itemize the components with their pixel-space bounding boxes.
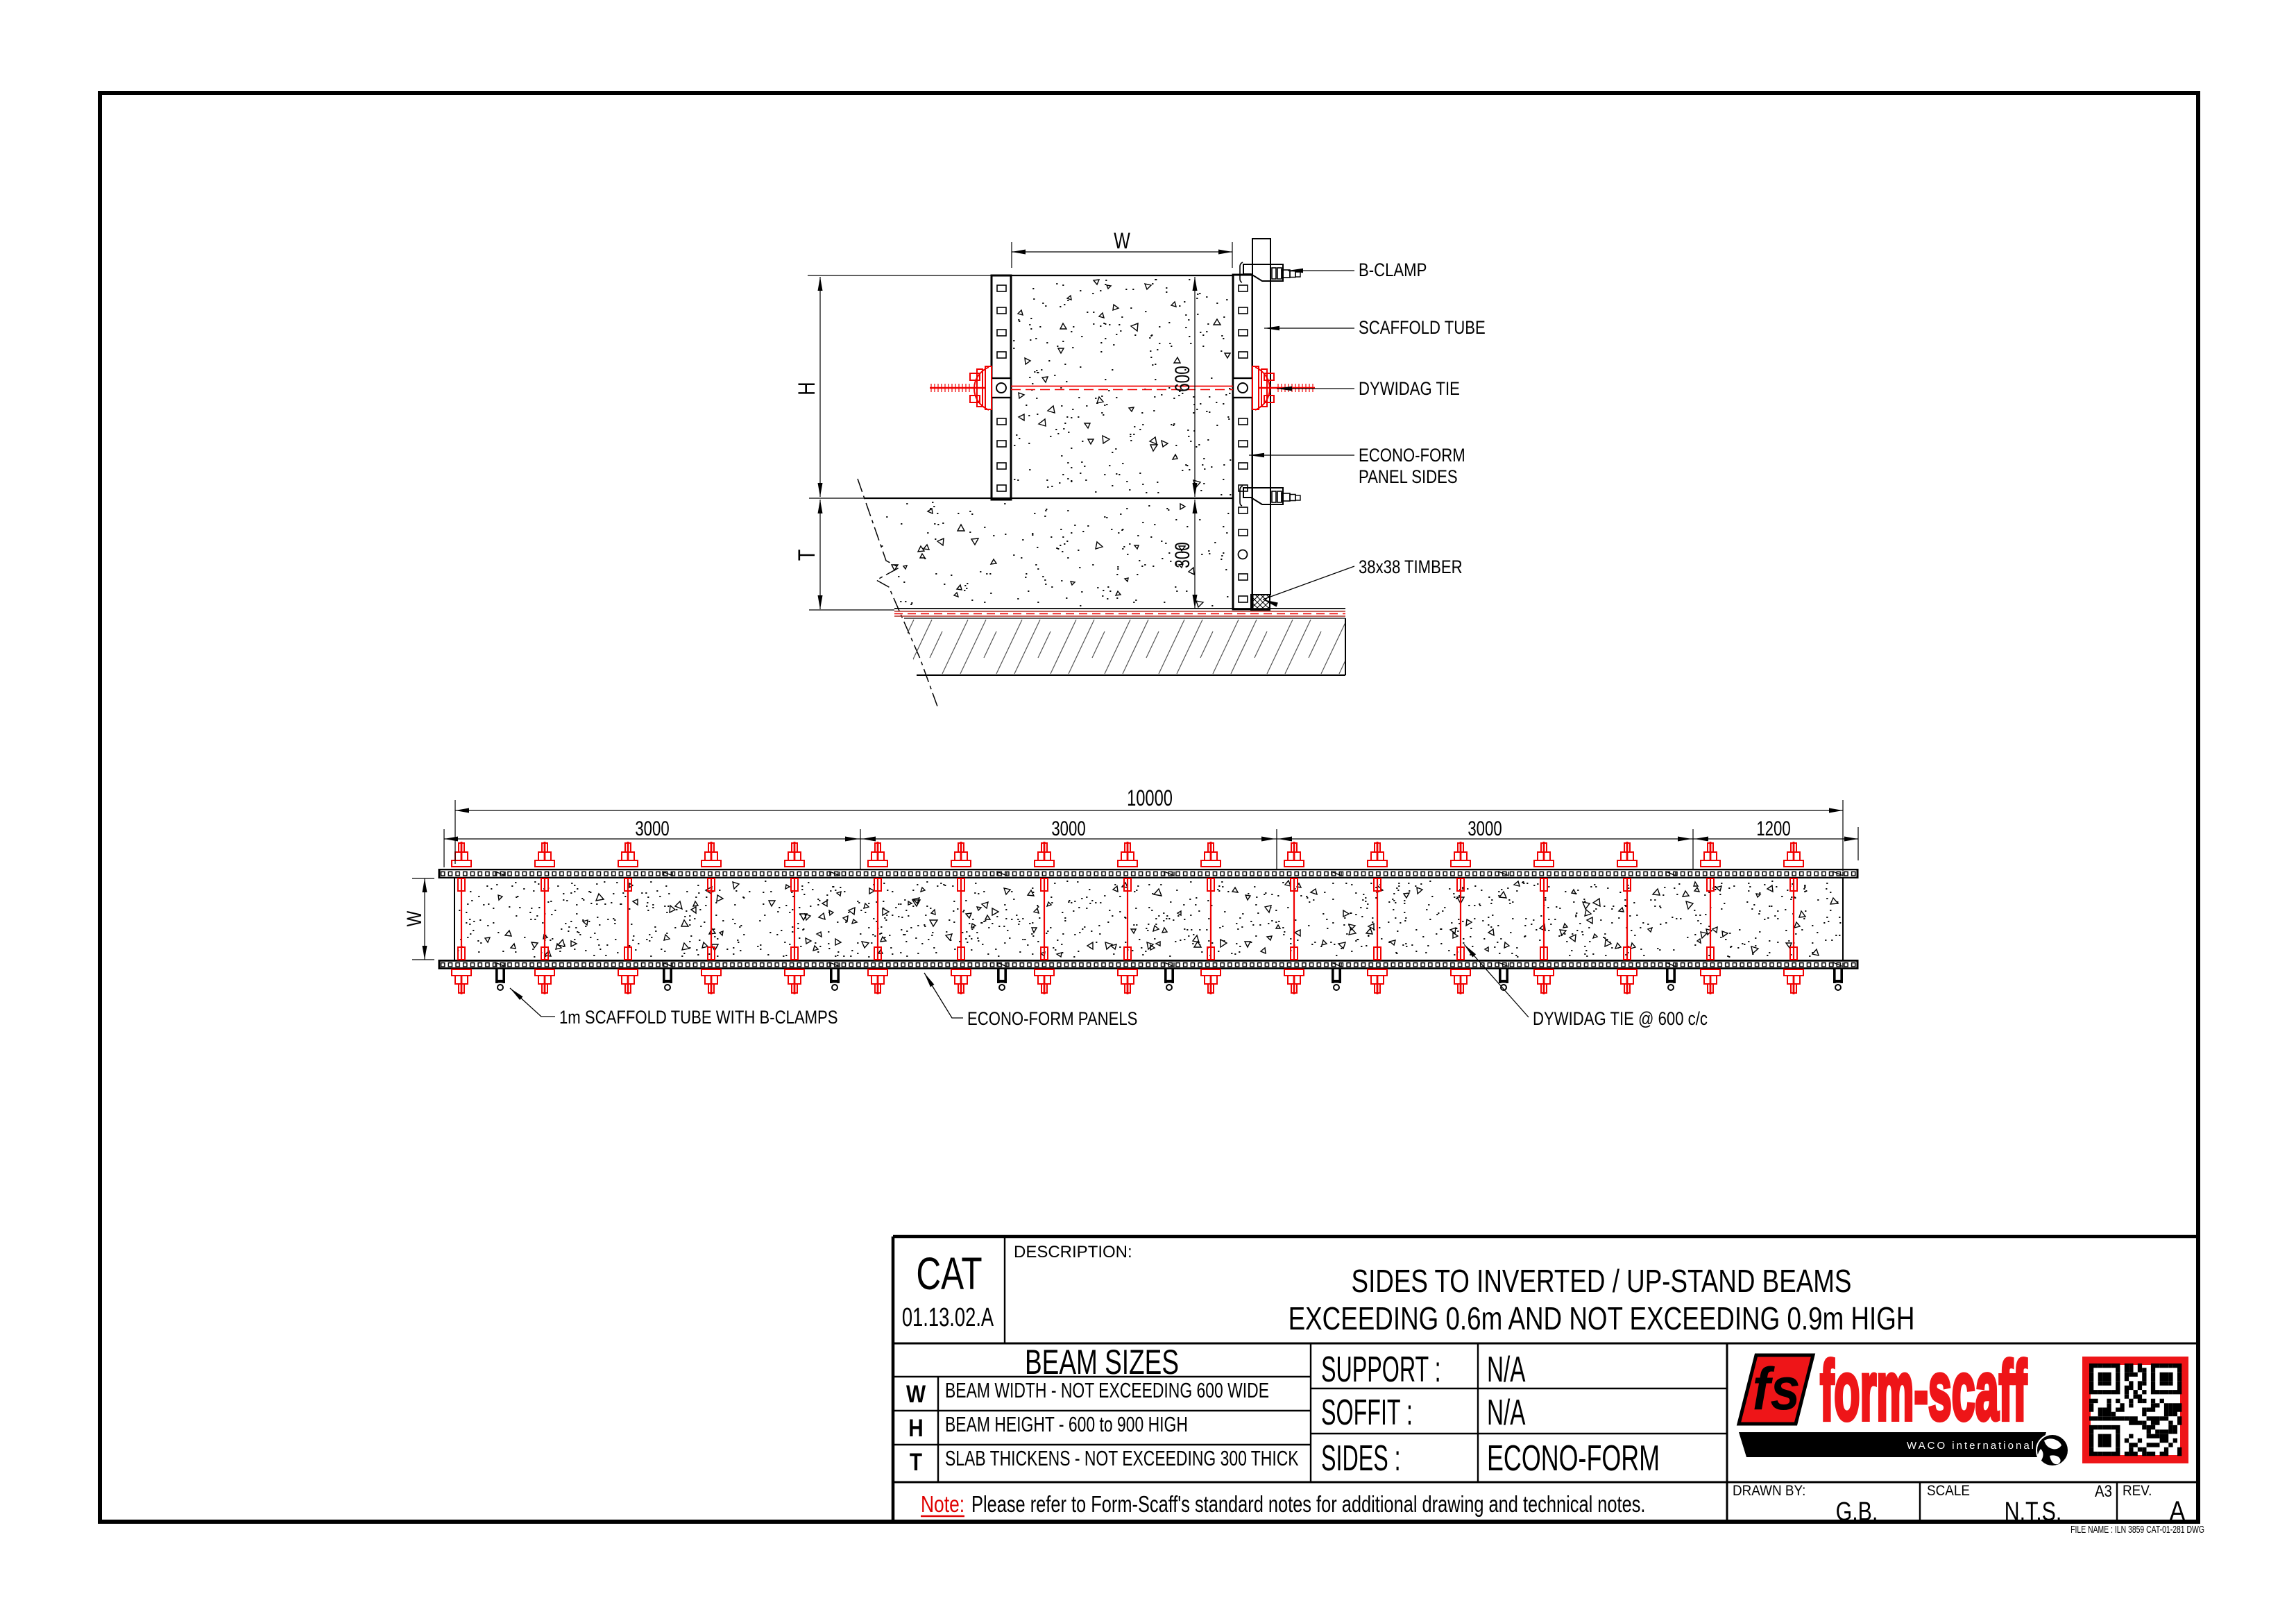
- svg-text:DESCRIPTION:: DESCRIPTION:: [1014, 1243, 1132, 1261]
- svg-text:ECONO-FORM PANELS: ECONO-FORM PANELS: [967, 1009, 1137, 1030]
- svg-text:N/A: N/A: [1487, 1393, 1526, 1433]
- svg-text:BEAM SIZES: BEAM SIZES: [1025, 1343, 1179, 1382]
- svg-text:SIDES TO INVERTED / UP-STAND B: SIDES TO INVERTED / UP-STAND BEAMS: [1352, 1263, 1852, 1299]
- svg-text:01.13.02.A: 01.13.02.A: [902, 1303, 994, 1332]
- svg-text:A: A: [2170, 1495, 2186, 1526]
- svg-text:N/A: N/A: [1487, 1350, 1526, 1390]
- svg-text:fs: fs: [1753, 1356, 1801, 1422]
- svg-text:600: 600: [1171, 366, 1194, 392]
- svg-text:B-CLAMP: B-CLAMP: [1359, 260, 1427, 281]
- svg-text:3000: 3000: [1468, 817, 1502, 840]
- svg-text:WACO international: WACO international: [1907, 1440, 2036, 1452]
- svg-text:G.B.: G.B.: [1836, 1497, 1878, 1527]
- svg-text:SOFFIT :: SOFFIT :: [1321, 1393, 1413, 1433]
- svg-text:form-scaff: form-scaff: [1820, 1344, 2027, 1438]
- svg-text:T: T: [910, 1449, 922, 1476]
- svg-text:A3: A3: [2095, 1481, 2112, 1500]
- svg-text:N.T.S.: N.T.S.: [2005, 1497, 2062, 1527]
- svg-text:1200: 1200: [1756, 817, 1790, 840]
- svg-text:W: W: [906, 1381, 926, 1408]
- svg-text:SIDES :: SIDES :: [1321, 1438, 1401, 1479]
- svg-text:EXCEEDING 0.6m AND NOT EXCEEDI: EXCEEDING 0.6m AND NOT EXCEEDING 0.9m HI…: [1289, 1300, 1915, 1336]
- svg-text:H: H: [908, 1415, 923, 1442]
- svg-text:W: W: [402, 910, 425, 926]
- svg-text:SUPPORT :: SUPPORT :: [1321, 1350, 1441, 1390]
- svg-text:BEAM WIDTH - NOT EXCEEDING 600: BEAM WIDTH - NOT EXCEEDING 600 WIDE: [945, 1378, 1269, 1402]
- svg-text:SCAFFOLD TUBE: SCAFFOLD TUBE: [1359, 318, 1486, 339]
- svg-text:ECONO-FORM: ECONO-FORM: [1359, 445, 1465, 466]
- svg-text:FILE NAME : ILN 3859 CAT-01-28: FILE NAME : ILN 3859 CAT-01-281 DWG: [2070, 1524, 2204, 1535]
- svg-text:1m SCAFFOLD TUBE WITH B-CLAMPS: 1m SCAFFOLD TUBE WITH B-CLAMPS: [559, 1008, 838, 1028]
- svg-text:3000: 3000: [1051, 817, 1085, 840]
- svg-text:Note:: Note:: [921, 1492, 964, 1517]
- svg-text:DYWIDAG TIE @ 600 c/c: DYWIDAG TIE @ 600 c/c: [1533, 1009, 1708, 1030]
- svg-text:3000: 3000: [635, 817, 669, 840]
- svg-text:Please refer to Form-Scaff's s: Please refer to Form-Scaff's standard no…: [971, 1492, 1645, 1518]
- svg-text:T: T: [793, 550, 820, 561]
- svg-text:ECONO-FORM: ECONO-FORM: [1487, 1439, 1660, 1479]
- svg-text:300: 300: [1171, 542, 1194, 568]
- svg-text:SLAB THICKENS - NOT EXCEEDING: SLAB THICKENS - NOT EXCEEDING 300 THICK: [945, 1446, 1299, 1470]
- svg-text:W: W: [1114, 229, 1130, 254]
- svg-text:CAT: CAT: [916, 1248, 982, 1300]
- svg-text:DYWIDAG TIE: DYWIDAG TIE: [1359, 379, 1460, 400]
- svg-text:DRAWN BY:: DRAWN BY:: [1733, 1483, 1805, 1499]
- svg-text:38x38 TIMBER: 38x38 TIMBER: [1359, 557, 1463, 578]
- svg-text:H: H: [793, 382, 820, 396]
- svg-text:BEAM HEIGHT - 600 to 900 HIGH: BEAM HEIGHT - 600 to 900 HIGH: [945, 1412, 1188, 1436]
- svg-text:PANEL SIDES: PANEL SIDES: [1359, 467, 1458, 488]
- svg-text:SCALE: SCALE: [1927, 1483, 1970, 1499]
- svg-text:REV.: REV.: [2123, 1483, 2152, 1499]
- svg-text:10000: 10000: [1127, 786, 1173, 810]
